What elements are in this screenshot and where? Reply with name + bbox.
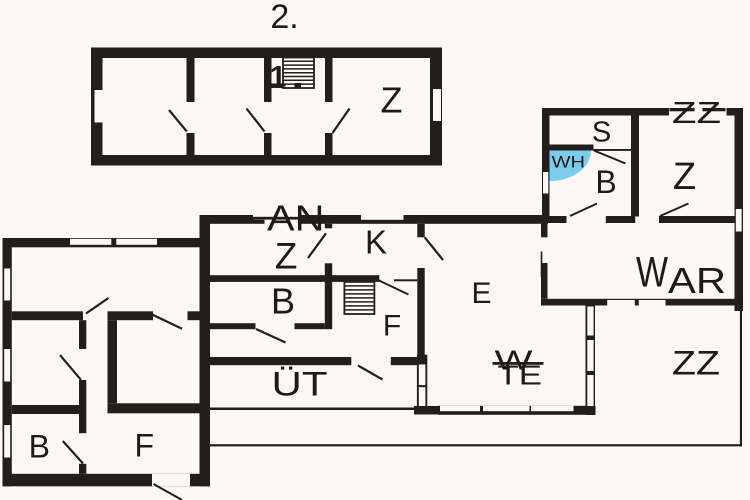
svg-text:K: K	[365, 224, 387, 261]
svg-text:F: F	[135, 428, 155, 464]
svg-text:1: 1	[270, 61, 287, 94]
svg-text:Z: Z	[673, 156, 696, 198]
svg-text:AR: AR	[668, 260, 726, 301]
svg-text:B: B	[271, 281, 295, 322]
svg-text:S: S	[592, 117, 611, 149]
svg-text:ÜT: ÜT	[272, 366, 328, 404]
svg-text:F: F	[383, 310, 401, 343]
svg-text:TE: TE	[498, 360, 543, 391]
svg-text:AN: AN	[267, 198, 325, 239]
svg-text:E: E	[471, 277, 491, 310]
svg-text:2.: 2.	[270, 0, 298, 36]
svg-text:B: B	[29, 429, 50, 465]
svg-text:W: W	[636, 249, 668, 297]
svg-text:ZZ: ZZ	[672, 95, 721, 130]
svg-text:WH: WH	[552, 153, 586, 172]
svg-text:ZZ: ZZ	[672, 345, 720, 383]
svg-text:Z: Z	[275, 236, 298, 277]
svg-text:Z: Z	[381, 80, 403, 121]
svg-text:B: B	[595, 164, 616, 200]
